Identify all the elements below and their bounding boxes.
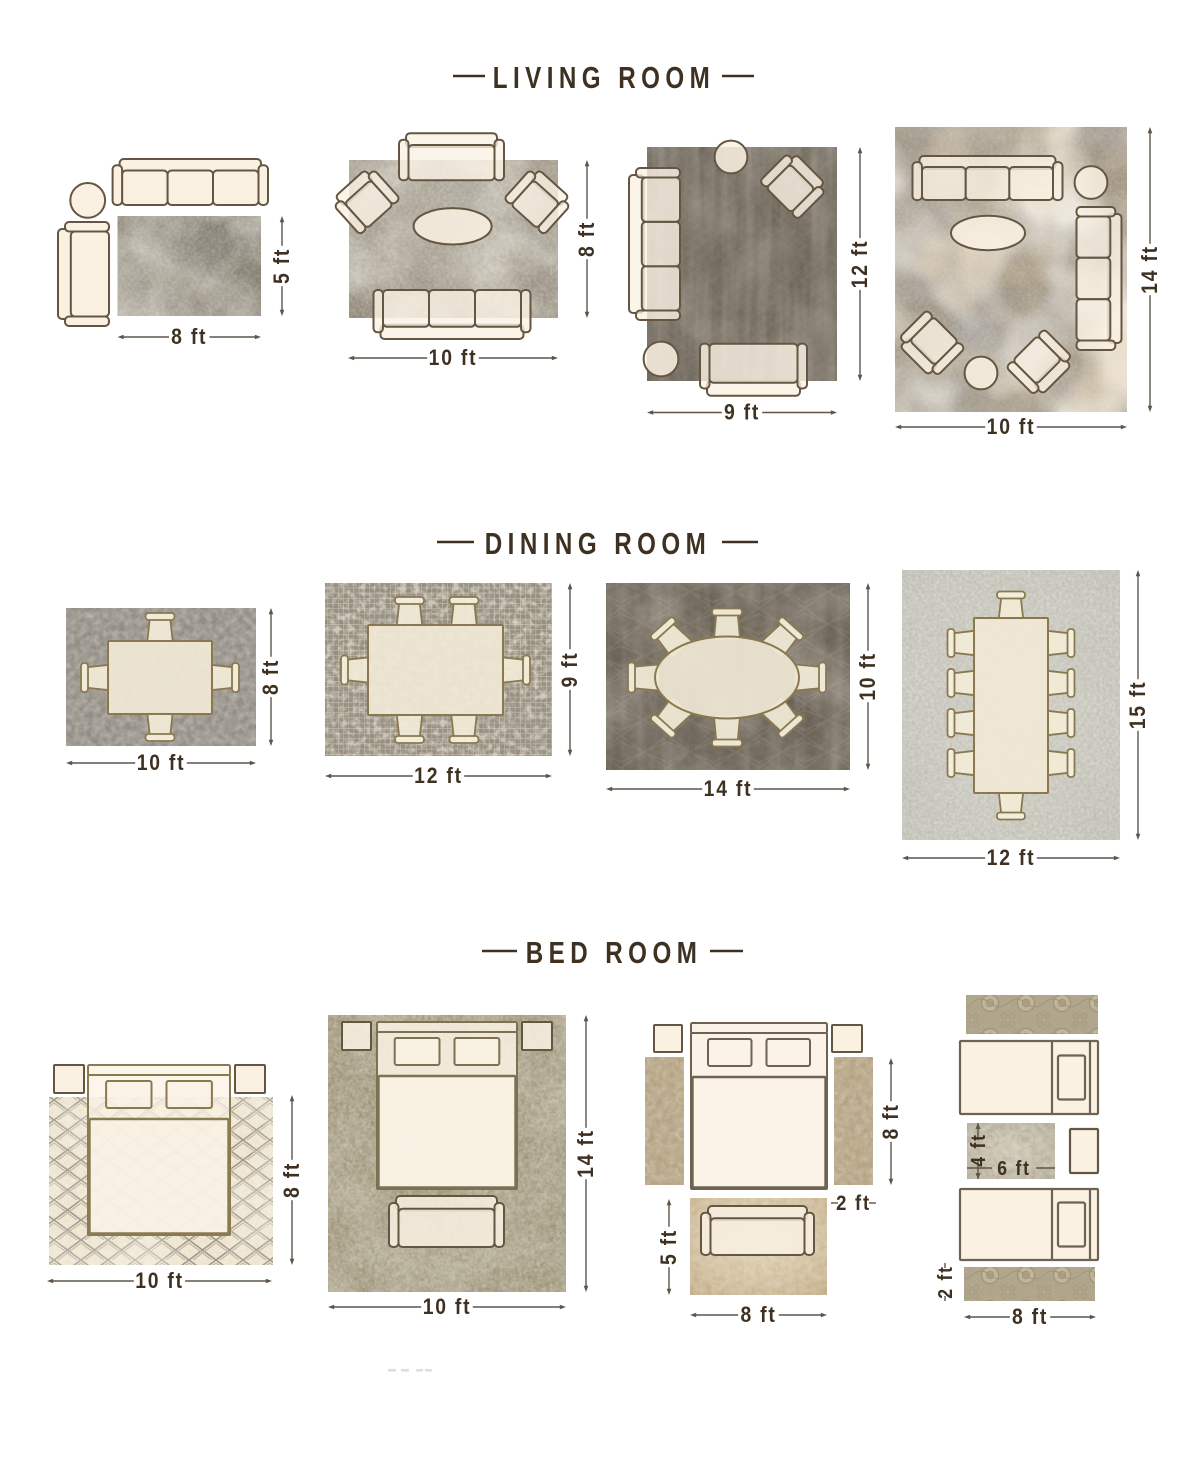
svg-text:5 ft: 5 ft — [270, 248, 294, 284]
svg-text:BED ROOM: BED ROOM — [526, 935, 703, 970]
svg-text:2 ft: 2 ft — [934, 1265, 956, 1298]
svg-text:8 ft: 8 ft — [280, 1162, 304, 1198]
svg-text:2 ft: 2 ft — [836, 1192, 871, 1215]
svg-text:6 ft: 6 ft — [997, 1157, 1030, 1179]
svg-text:DINING ROOM: DINING ROOM — [485, 526, 712, 561]
svg-text:8 ft: 8 ft — [879, 1103, 903, 1139]
svg-text:8 ft: 8 ft — [575, 221, 599, 257]
svg-text:10 ft: 10 ft — [423, 1295, 472, 1319]
svg-text:12 ft: 12 ft — [848, 240, 872, 289]
svg-text:8 ft: 8 ft — [740, 1303, 776, 1327]
svg-text:15 ft: 15 ft — [1126, 681, 1150, 730]
svg-text:9 ft: 9 ft — [724, 400, 760, 424]
svg-text:8 ft: 8 ft — [259, 659, 283, 695]
svg-text:LIVING ROOM: LIVING ROOM — [493, 60, 716, 95]
svg-text:10 ft: 10 ft — [137, 751, 186, 775]
svg-text:14 ft: 14 ft — [1138, 245, 1162, 294]
svg-text:8 ft: 8 ft — [171, 325, 207, 349]
svg-text:4 ft: 4 ft — [967, 1133, 989, 1166]
svg-text:9 ft: 9 ft — [558, 651, 582, 687]
svg-text:14 ft: 14 ft — [574, 1129, 598, 1178]
svg-text:10 ft: 10 ft — [987, 415, 1036, 439]
svg-text:10 ft: 10 ft — [856, 652, 880, 701]
svg-text:12 ft: 12 ft — [987, 846, 1036, 870]
svg-text:5 ft: 5 ft — [657, 1229, 681, 1265]
svg-text:8 ft: 8 ft — [1012, 1305, 1048, 1329]
svg-text:14 ft: 14 ft — [704, 777, 753, 801]
svg-text:12 ft: 12 ft — [414, 764, 463, 788]
svg-text:10 ft: 10 ft — [135, 1269, 184, 1293]
svg-text:10 ft: 10 ft — [429, 346, 478, 370]
